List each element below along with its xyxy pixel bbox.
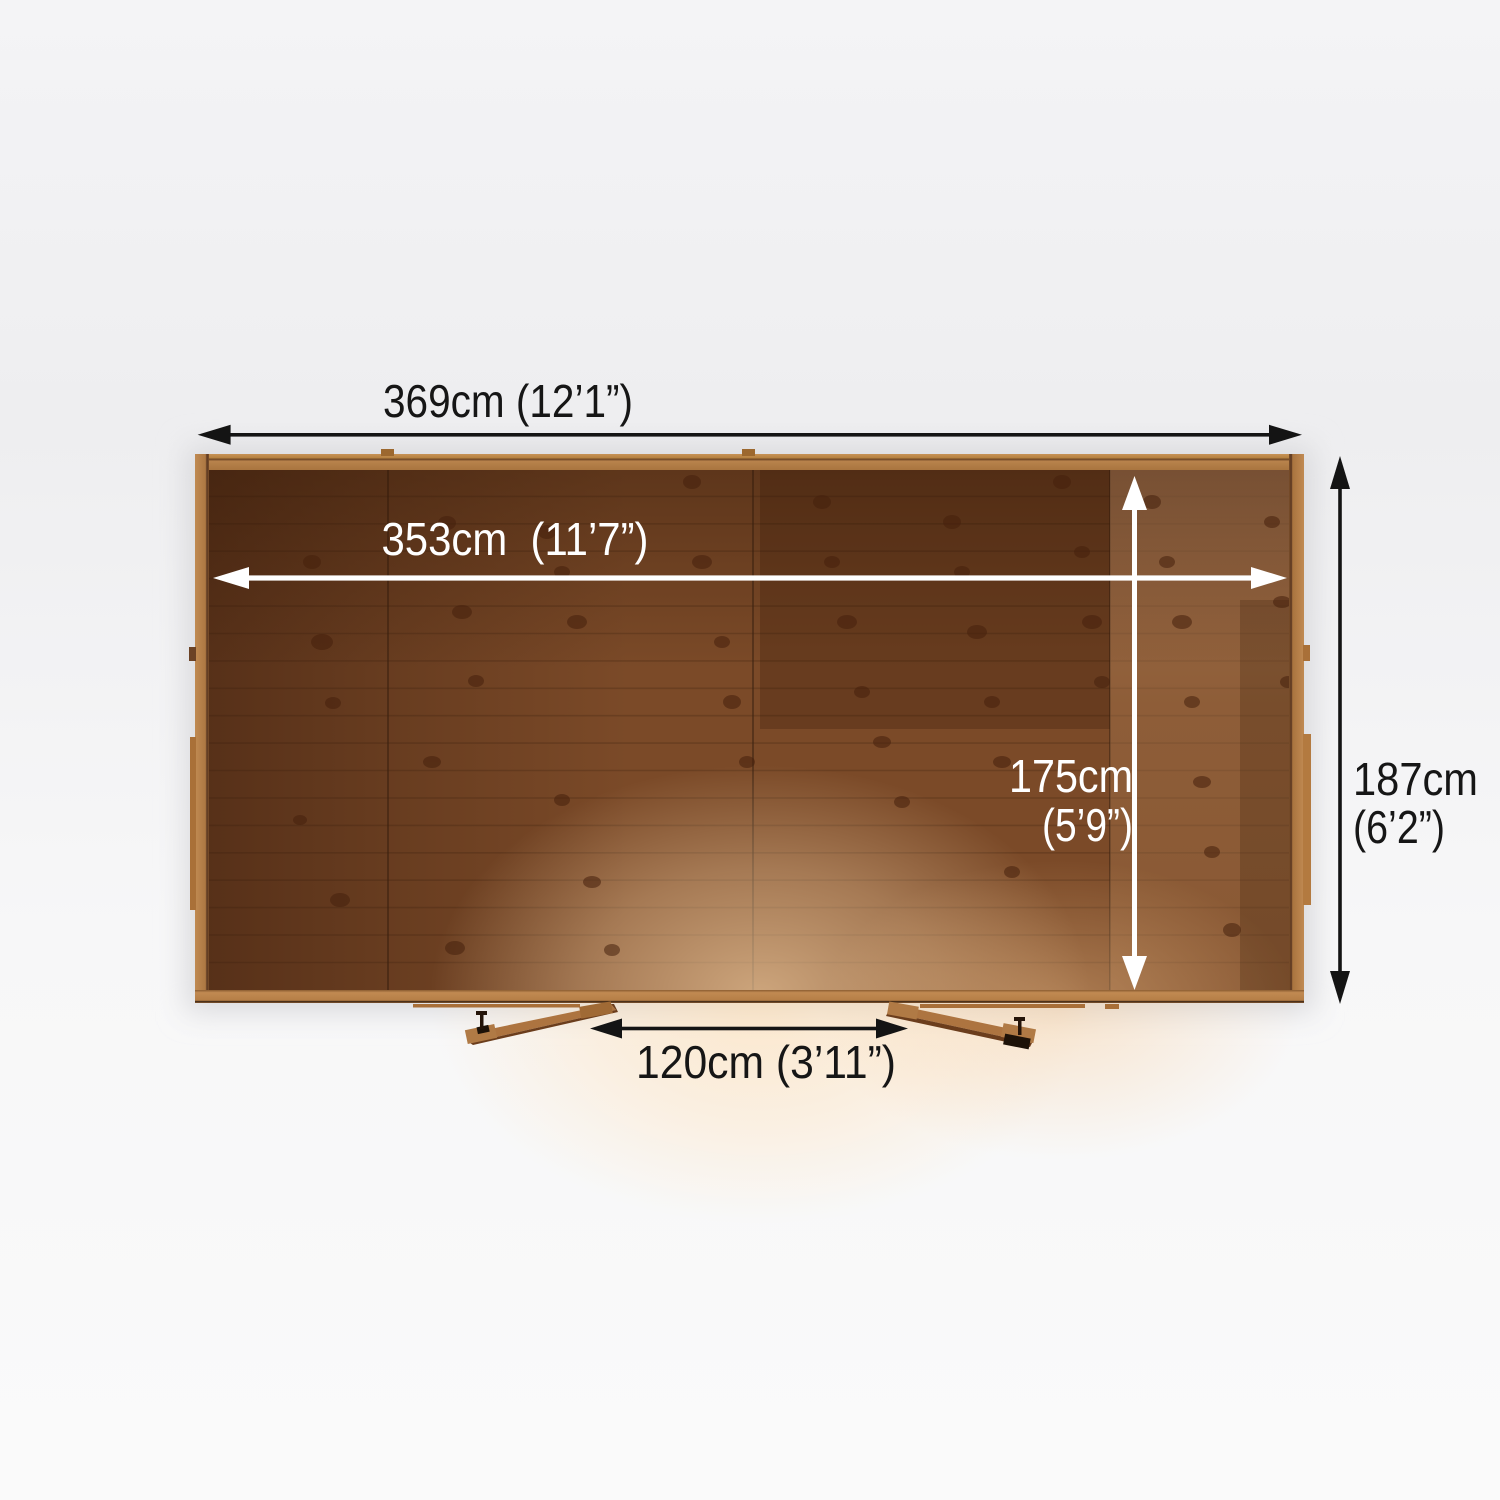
svg-text:(5’9”): (5’9”): [1042, 799, 1133, 851]
svg-text:369cm (12’1”): 369cm (12’1”): [383, 375, 633, 427]
svg-text:120cm (3’11”): 120cm (3’11”): [636, 1036, 896, 1088]
svg-text:353cm (11’7”): 353cm (11’7”): [382, 513, 649, 565]
svg-text:(6’2”): (6’2”): [1353, 801, 1445, 853]
svg-text:187cm: 187cm: [1353, 753, 1478, 805]
svg-text:175cm: 175cm: [1009, 750, 1133, 802]
